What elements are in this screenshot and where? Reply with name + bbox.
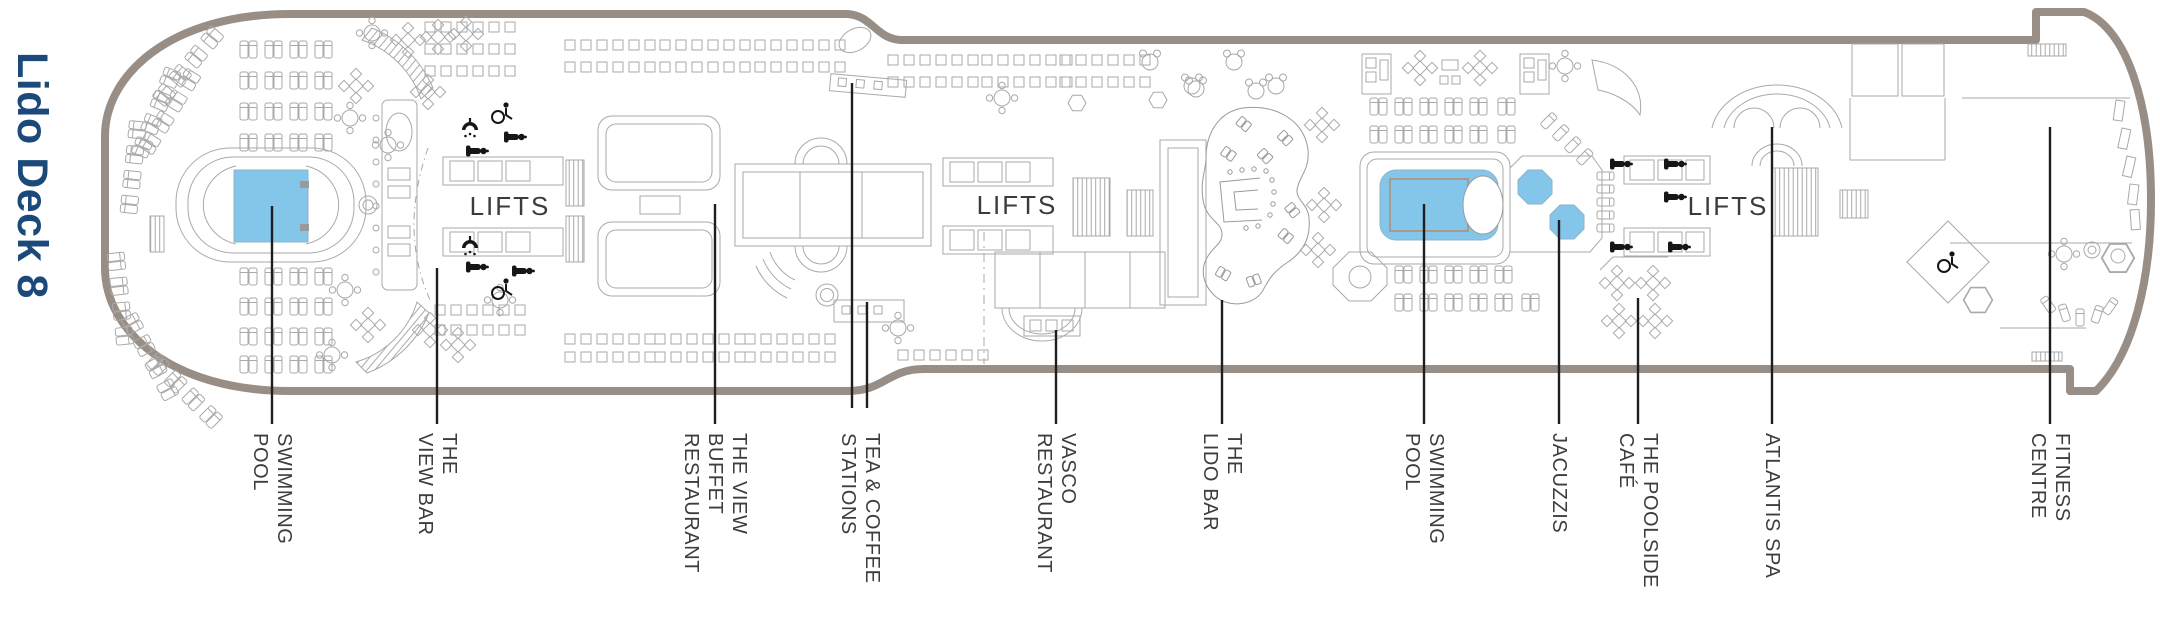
plan-label-the-view-bar: THE VIEW BAR: [413, 433, 461, 536]
plan-label-the-poolside-cafe: THE POOLSIDE CAFÉ: [1614, 433, 1662, 588]
plan-label-fitness-centre: FITNESS CENTRE: [2026, 433, 2074, 522]
lifts-label-midship: LIFTS: [977, 190, 1058, 220]
label-line: BUFFET: [703, 433, 727, 573]
label-line: THE VIEW: [727, 433, 751, 573]
label-line: RESTAURANT: [679, 433, 703, 573]
label-line: STATIONS: [836, 433, 860, 584]
label-line: CAFÉ: [1614, 433, 1638, 588]
plan-label-tea-and-coffee-stations: TEA & COFFEE STATIONS: [836, 433, 884, 584]
label-line: TEA & COFFEE: [860, 433, 884, 584]
deck-plan-page: LIFTS LIFTS LIFTS Lido Deck 8 SWIMMING P…: [0, 0, 2160, 622]
jacuzzi-2: [1550, 205, 1584, 239]
label-line: VIEW BAR: [413, 433, 437, 536]
label-line: SWIMMING: [1424, 433, 1448, 544]
label-line: ATLANTIS SPA: [1760, 433, 1784, 578]
label-line: JACUZZIS: [1547, 433, 1571, 533]
label-line: RESTAURANT: [1032, 433, 1056, 573]
label-line: CENTRE: [2026, 433, 2050, 522]
label-line: THE: [437, 433, 461, 536]
plan-label-vasco-restaurant: VASCO RESTAURANT: [1032, 433, 1080, 573]
label-line: POOL: [248, 433, 272, 544]
label-line: POOL: [1400, 433, 1424, 544]
plan-label-atlantis-spa: ATLANTIS SPA: [1760, 433, 1784, 578]
jacuzzi-1: [1518, 170, 1552, 204]
plan-label-the-lido-bar: THE LIDO BAR: [1198, 433, 1246, 531]
label-line: SWIMMING: [272, 433, 296, 544]
plan-label-jacuzzis: JACUZZIS: [1547, 433, 1571, 533]
plan-label-the-view-buffet-restaurant: THE VIEW BUFFET RESTAURANT: [679, 433, 751, 573]
plan-label-swimming-pool-aft: SWIMMING POOL: [1400, 433, 1448, 544]
lifts-label-aft: LIFTS: [1688, 191, 1769, 221]
plan-label-swimming-pool-forward: SWIMMING POOL: [248, 433, 296, 544]
pool-ladder-icon: [300, 224, 309, 231]
label-line: LIDO BAR: [1198, 433, 1222, 531]
label-line: THE POOLSIDE: [1638, 433, 1662, 588]
pool-ladder-icon: [300, 181, 309, 188]
deck-plan-graphic: LIFTS LIFTS LIFTS: [0, 0, 2160, 622]
label-line: THE: [1222, 433, 1246, 531]
deck-title: Lido Deck 8: [7, 52, 56, 299]
label-line: VASCO: [1056, 433, 1080, 573]
lifts-label-forward: LIFTS: [470, 191, 551, 221]
label-line: FITNESS: [2050, 433, 2074, 522]
